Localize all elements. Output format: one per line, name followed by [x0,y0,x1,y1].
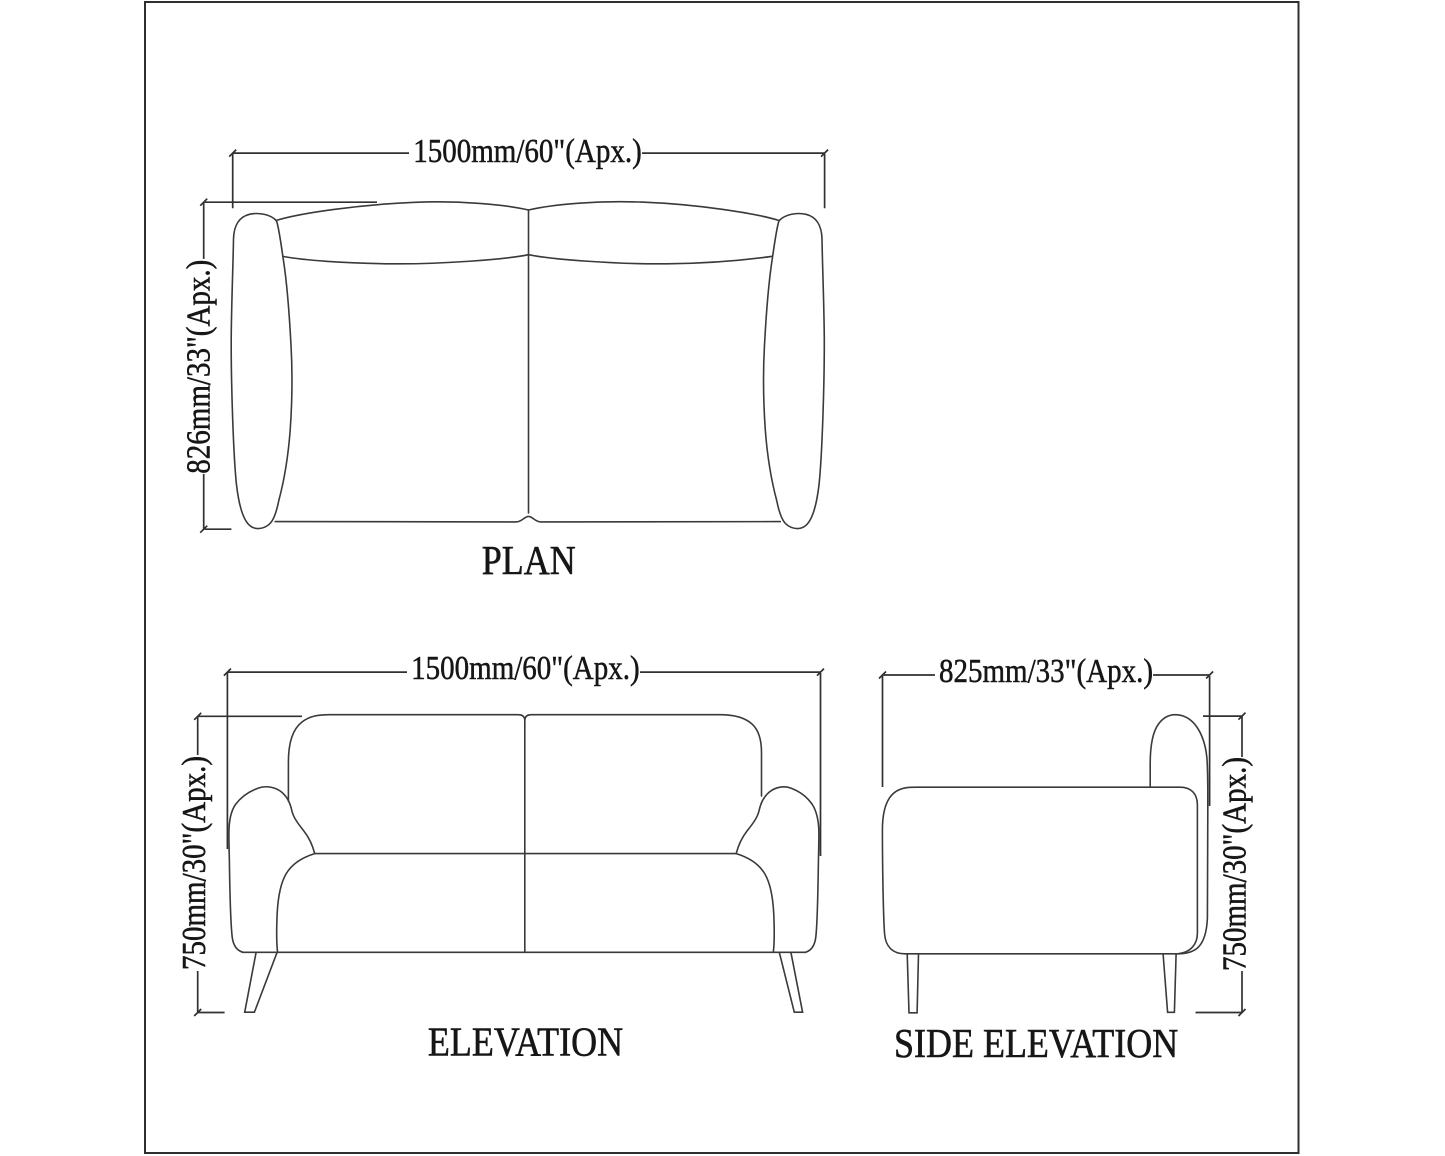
svg-text:750mm/30"(Apx.): 750mm/30"(Apx.) [1216,757,1253,971]
svg-text:1500mm/60"(Apx.): 1500mm/60"(Apx.) [411,649,640,686]
svg-text:PLAN: PLAN [482,538,576,584]
svg-text:SIDE ELEVATION: SIDE ELEVATION [894,1021,1178,1067]
svg-text:826mm/33"(Apx.): 826mm/33"(Apx.) [180,260,217,474]
svg-text:825mm/33"(Apx.): 825mm/33"(Apx.) [939,652,1153,689]
svg-text:ELEVATION: ELEVATION [428,1019,623,1065]
svg-text:1500mm/60"(Apx.): 1500mm/60"(Apx.) [413,132,642,169]
svg-text:750mm/30"(Apx.): 750mm/30"(Apx.) [175,756,212,970]
